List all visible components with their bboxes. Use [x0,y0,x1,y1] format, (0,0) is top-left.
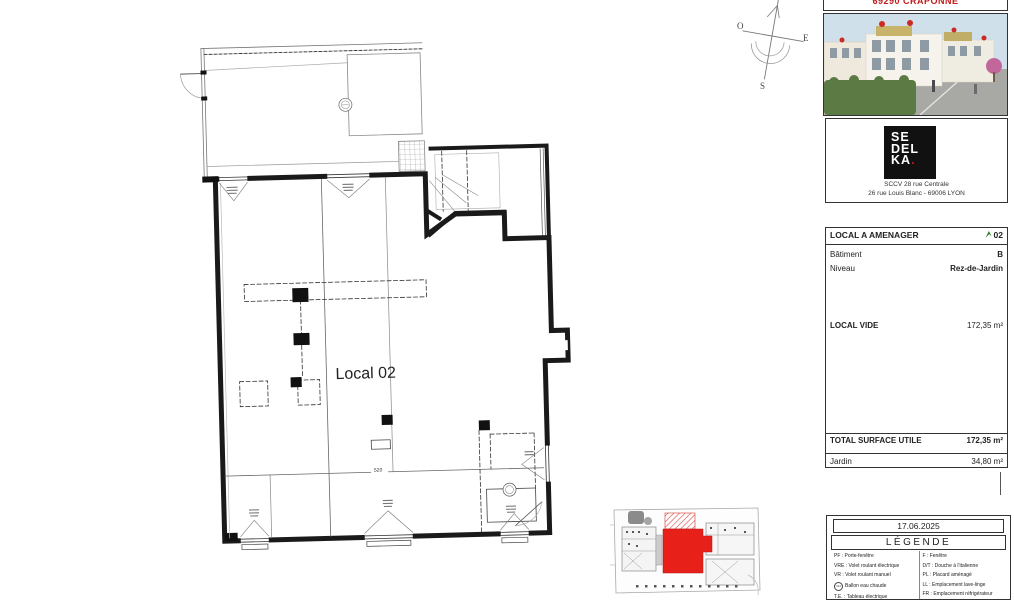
interior-partitions [217,174,549,539]
unit-label: Local 02 [335,365,396,384]
garden-terrace [180,43,425,180]
local-number: 02 [994,230,1003,240]
developer-logo: SE DEL KA. [884,126,936,179]
niveau-row: Niveau Rez-de-Jardin [826,264,1007,273]
legend-block: 17.06.2025 LÉGENDE PF : Porte-fenêtre VR… [826,515,1011,600]
dimension-label: 520 [374,467,383,473]
column [382,415,393,425]
drawing-sheet: Local 02 520 O E S [0,0,1014,600]
door-arc [515,502,543,526]
legend-item: VRE : Volet roulant électrique [834,563,917,569]
water-heater-symbol [503,483,516,496]
compass-south-label: S [760,81,765,91]
legend-item: VR : Volet roulant manuel [834,572,917,578]
service-zones [237,277,537,539]
window-right [521,446,552,483]
total-row: TOTAL SURFACE UTILE 172,35 m² [826,436,1007,445]
compass-rose: O E S [735,0,811,91]
project-photo [823,13,1008,116]
column [291,377,302,387]
column [479,420,490,430]
compass-east-label: E [803,33,809,43]
side-terrace [426,146,549,241]
legend-item: PF : Porte-fenêtre [834,553,917,559]
legend-column-left: PF : Porte-fenêtre VRE : Volet roulant é… [831,551,919,600]
project-header: 69290 CRAPONNE [823,0,1008,11]
legend-item: F : Fenêtre [923,553,1005,559]
unit-walls [215,170,572,541]
legend-item: FR : Emplacement réfrigérateur [923,591,1005,597]
garden-hatch [398,141,425,172]
legend-column-right: F : Fenêtre D/T : Douche à l'italienne P… [919,551,1007,600]
date-box: 17.06.2025 [833,519,1004,533]
column [292,288,308,302]
garden-symbol [339,98,352,111]
legend-item: D/T : Douche à l'italienne [923,563,1005,569]
table-header-row: LOCAL A AMENAGER 02 [826,230,1007,240]
legend-title: LÉGENDE [831,535,1006,550]
frame-line [1000,472,1001,495]
batiment-row: Bâtiment B [826,250,1007,259]
legend-item: T.E. : Tableau électrique [834,594,917,600]
green-check-icon [986,231,992,238]
info-table: LOCAL A AMENAGER 02 Bâtiment B Niveau Re… [825,227,1008,468]
jardin-row: Jardin 34,80 m² [826,457,1007,466]
local-header-label: LOCAL A AMENAGER [830,230,919,240]
door-arc [180,70,207,101]
wall-niche [558,340,568,350]
legend-item: LL : Emplacement lave-linge [923,582,1005,588]
column [293,333,309,345]
project-location: 69290 CRAPONNE [824,0,1007,6]
garden-highlight [665,513,695,529]
columns [288,283,490,435]
developer-company: SCCV 28 rue Centrale [826,181,1007,188]
site-plan [610,508,760,595]
legend-item: PL : Placard aménagé [923,572,1005,578]
logo-red-dot: . [911,153,915,167]
water-heater-icon: CH [834,582,843,591]
compass-west-label: O [737,21,744,31]
developer-block: SE DEL KA. SCCV 28 rue Centrale 26 rue L… [825,118,1008,203]
building-photo [824,14,1007,115]
developer-address: 26 rue Louis Blanc - 69006 LYON [826,190,1007,197]
legend-item: CHBallon eau chaude [834,582,917,591]
local-vide-row: LOCAL VIDE 172,35 m² [826,321,1007,330]
